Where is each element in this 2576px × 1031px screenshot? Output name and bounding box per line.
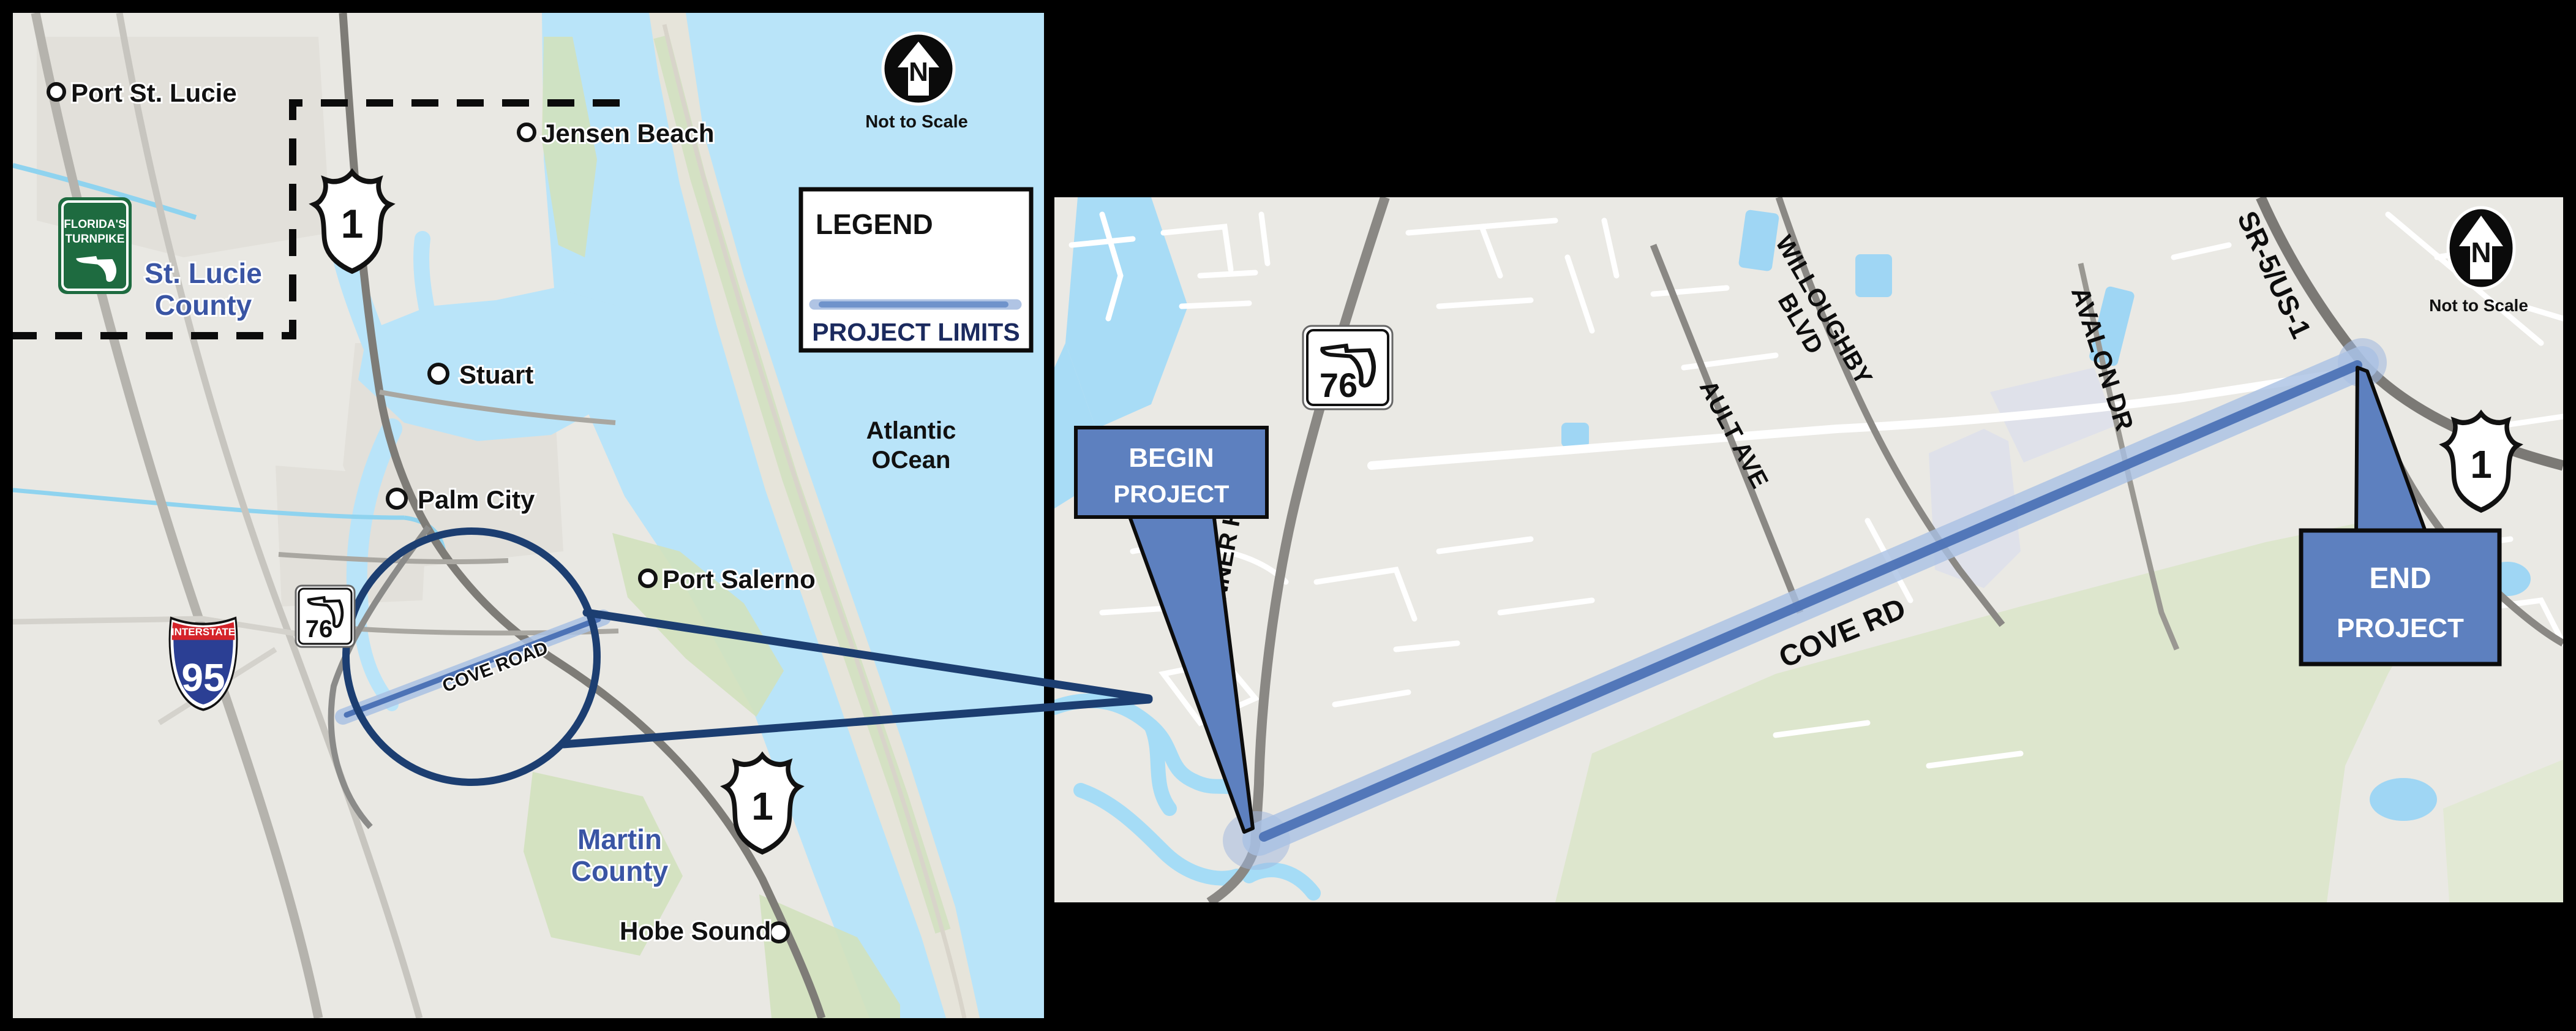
i95-interstate-text: INTERSTATE (171, 626, 235, 638)
svg-text:1: 1 (341, 201, 364, 246)
marker-palm-city (388, 489, 406, 508)
label-st-lucie-county-2: County (155, 289, 252, 321)
sr76-shield-right: 76 (1303, 326, 1392, 409)
svg-text:FLORIDA'S: FLORIDA'S (64, 218, 126, 231)
label-palm-city: Palm City (418, 485, 535, 514)
label-martin-county-1: Martin (577, 823, 662, 855)
marker-jensen-beach (519, 124, 535, 140)
not-to-scale-left: Not to Scale (865, 112, 968, 132)
label-st-lucie-county-1: St. Lucie (145, 257, 262, 289)
label-port-salerno: Port Salerno (663, 565, 816, 594)
label-hobe-sound: Hobe Sound (620, 916, 771, 945)
legend-box: LEGEND PROJECT LIMITS (801, 189, 1031, 350)
end-project-line2: PROJECT (2337, 613, 2464, 643)
begin-project-line1: BEGIN (1128, 443, 1214, 473)
svg-text:1: 1 (2470, 442, 2492, 486)
legend-item-project-limits: PROJECT LIMITS (812, 318, 1020, 346)
svg-text:76: 76 (306, 616, 333, 643)
label-atlantic-2: OCean (872, 447, 951, 474)
i95-shield: INTERSTATE 95 (171, 622, 235, 706)
legend-title: LEGEND (816, 208, 933, 240)
svg-text:76: 76 (1320, 366, 1357, 404)
label-martin-county-2: County (571, 855, 669, 887)
label-port-st-lucie: Port St. Lucie (71, 78, 237, 107)
sr76-shield-left: 76 (296, 586, 355, 647)
label-jensen-beach: Jensen Beach (541, 119, 714, 148)
north-n-left: N (909, 57, 928, 87)
label-atlantic-1: Atlantic (866, 417, 956, 444)
not-to-scale-right: Not to Scale (2429, 296, 2528, 315)
marker-port-st-lucie (48, 84, 64, 100)
regional-location-map: COVE ROAD Port St. Lucie Jensen Beach St… (13, 13, 1044, 1018)
project-detail-map: KANNER HWY AULT AVE WILLOUGHBY BLVD AVAL… (1054, 197, 2563, 902)
marker-stuart (429, 364, 448, 383)
label-stuart: Stuart (459, 360, 533, 389)
i95-number: 95 (181, 655, 225, 700)
end-project-line1: END (2369, 562, 2431, 595)
svg-text:TURNPIKE: TURNPIKE (65, 233, 124, 246)
floridas-turnpike-shield: FLORIDA'S TURNPIKE (58, 197, 132, 294)
begin-project-line2: PROJECT (1114, 481, 1230, 508)
marker-port-salerno (640, 570, 656, 586)
north-n-right: N (2471, 236, 2491, 268)
marker-hobe-sound (770, 923, 788, 942)
svg-text:1: 1 (751, 784, 773, 828)
